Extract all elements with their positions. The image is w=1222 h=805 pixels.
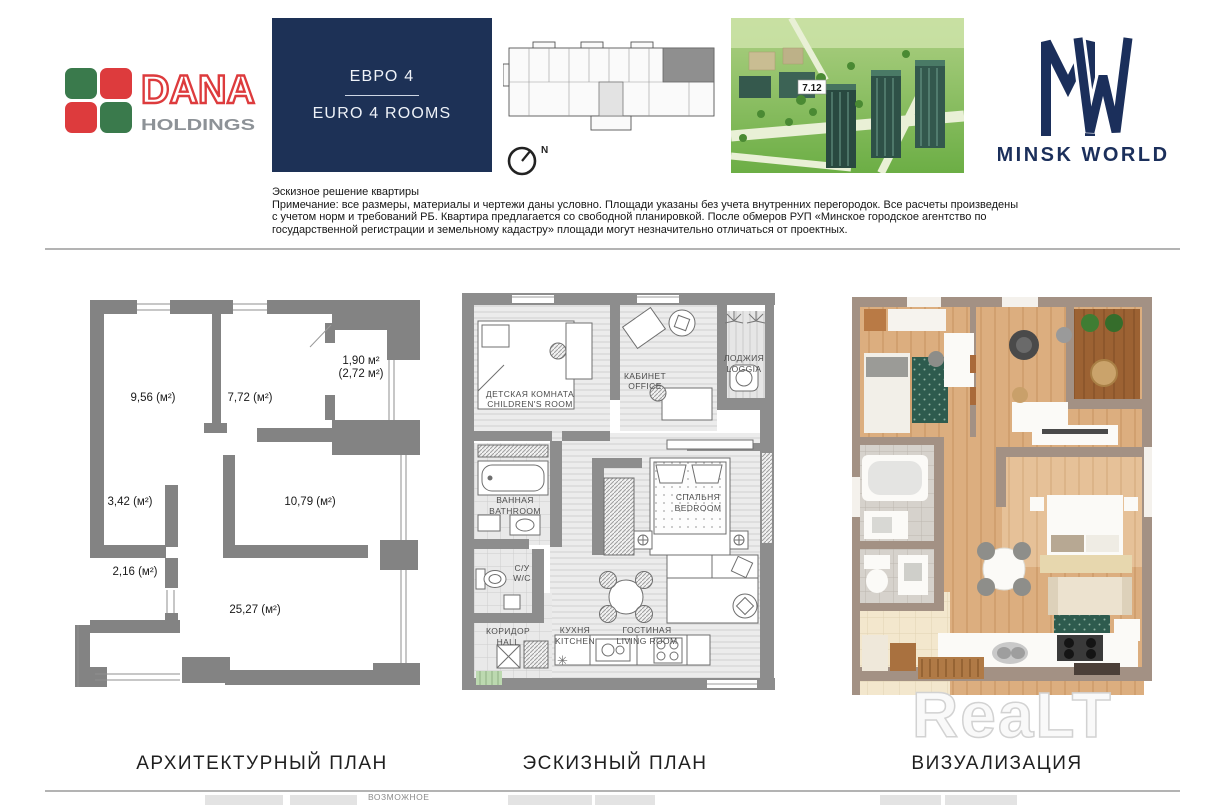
aerial-view-image: 7.12 xyxy=(731,18,964,173)
sketch-plan-figure: ✳ ДЕТСКАЯ КОМНАТА CHILDREN'S ROOM КАБИНЕ… xyxy=(462,293,792,703)
label-hall-en: HALL xyxy=(497,637,520,647)
disclaimer-line2: с учетом норм и требований РБ. Квартира … xyxy=(272,211,972,224)
footer-bar-6 xyxy=(945,795,1017,805)
footer-divider xyxy=(45,790,1180,792)
compass-north-label: N xyxy=(541,145,548,156)
label-kitchen-en: KITCHEN xyxy=(555,636,595,646)
area-loggia-1: 1,90 м² xyxy=(342,355,379,367)
minsk-world-logo: MINSK WORLD xyxy=(998,28,1168,168)
caption-sketch-plan: ЭСКИЗНЫЙ ПЛАН xyxy=(465,752,765,776)
area-loggia-2: (2,72 м²) xyxy=(339,368,384,380)
flat-spec-sheet: { "header": { "dana_logo": {"name": "DAN… xyxy=(0,0,1222,801)
floor-site-plan: N xyxy=(503,34,723,182)
label-loggia-ru: ЛОДЖИЯ xyxy=(724,353,764,363)
label-living-en: LIVING ROOM xyxy=(616,636,677,646)
label-office-ru: КАБИНЕТ xyxy=(624,371,666,381)
mw-monogram-icon xyxy=(1046,38,1128,136)
label-loggia-en: LOGGIA xyxy=(727,364,762,374)
unit-type-ru: ЕВРО 4 xyxy=(350,68,415,86)
symbol-asterisk: ✳ xyxy=(557,653,568,668)
label-bedroom-en: BEDROOM xyxy=(675,503,722,513)
area-room-top-right: 7,72 (м²) xyxy=(228,392,273,404)
label-kitchen-ru: КУХНЯ xyxy=(560,625,590,635)
footer-bar-5 xyxy=(880,795,941,805)
footer-bar-1 xyxy=(205,795,283,805)
disclaimer-line1: Примечание: все размеры, материалы и чер… xyxy=(272,199,972,212)
area-room-mid-right: 10,79 (м²) xyxy=(284,496,336,508)
visualization-figure xyxy=(852,297,1152,702)
label-hall-ru: КОРИДОР xyxy=(486,626,530,636)
dana-holdings-logo: DANA HOLDINGS xyxy=(64,66,264,140)
stair-core xyxy=(599,82,623,116)
highlighted-unit xyxy=(663,48,714,82)
label-children-ru: ДЕТСКАЯ КОМНАТА xyxy=(486,389,574,399)
area-room-mid-left: 3,42 (м²) xyxy=(108,496,153,508)
disclaimer-title: Эскизное решение квартиры xyxy=(272,186,972,199)
unit-type-box: ЕВРО 4 EURO 4 ROOMS xyxy=(272,18,492,172)
label-office-en: OFFICE xyxy=(628,381,662,391)
disclaimer-line3: государственной регистрации и земельному… xyxy=(272,224,972,237)
dana-wordmark: DANA xyxy=(141,68,255,112)
area-labels: 9,56 (м²) 7,72 (м²) 1,90 м² (2,72 м²) 3,… xyxy=(108,355,384,616)
dana-subtitle: HOLDINGS xyxy=(141,117,255,134)
label-wc-ru: С/У xyxy=(514,563,529,573)
unit-type-en: EURO 4 ROOMS xyxy=(313,105,452,123)
realt-watermark: ReaLT xyxy=(912,678,1172,758)
area-room-small: 2,16 (м²) xyxy=(113,566,158,578)
unit-type-divider xyxy=(345,95,419,96)
dana-squares-icon xyxy=(65,68,132,133)
svg-text:7.12: 7.12 xyxy=(802,83,822,94)
area-room-top-left: 9,56 (м²) xyxy=(131,392,176,404)
compass-icon: N xyxy=(509,145,548,174)
footer-bar-4 xyxy=(595,795,655,805)
area-room-main: 25,27 (м²) xyxy=(229,604,281,616)
label-bathroom-en: BATHROOM xyxy=(489,506,541,516)
label-children-en: CHILDREN'S ROOM xyxy=(487,399,573,409)
label-bedroom-ru: СПАЛЬНЯ xyxy=(676,492,720,502)
label-bathroom-ru: ВАННАЯ xyxy=(496,495,534,505)
footer-bar-2 xyxy=(290,795,357,805)
footer-bar-3 xyxy=(508,795,592,805)
header-divider xyxy=(45,248,1180,250)
building-number-badge: 7.12 xyxy=(798,80,826,94)
minsk-world-wordmark: MINSK WORLD xyxy=(998,144,1168,166)
architectural-plan-figure: 9,56 (м²) 7,72 (м²) 1,90 м² (2,72 м²) 3,… xyxy=(70,295,420,710)
caption-architectural-plan: АРХИТЕКТУРНЫЙ ПЛАН xyxy=(112,752,412,776)
label-wc-en: W/C xyxy=(513,573,531,583)
disclaimer-text: Эскизное решение квартиры Примечание: вс… xyxy=(272,186,972,236)
label-living-ru: ГОСТИНАЯ xyxy=(622,625,671,635)
